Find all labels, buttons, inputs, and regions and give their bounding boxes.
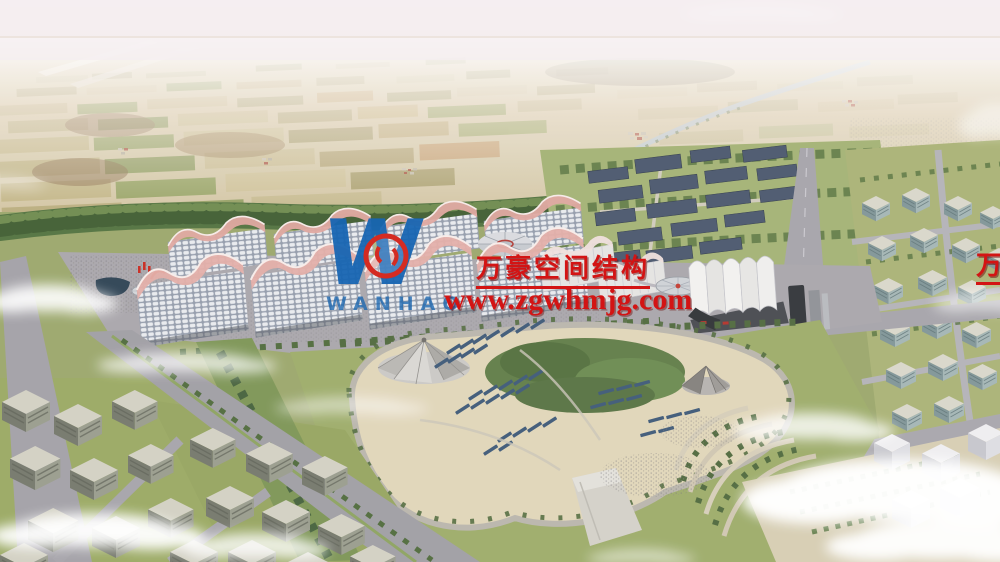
scene-canvas — [0, 0, 1000, 562]
atmosphere — [0, 0, 1000, 562]
aerial-rendering: W WANHAO 万豪空间结构 www.zgwhmjg.com 万 — [0, 0, 1000, 562]
